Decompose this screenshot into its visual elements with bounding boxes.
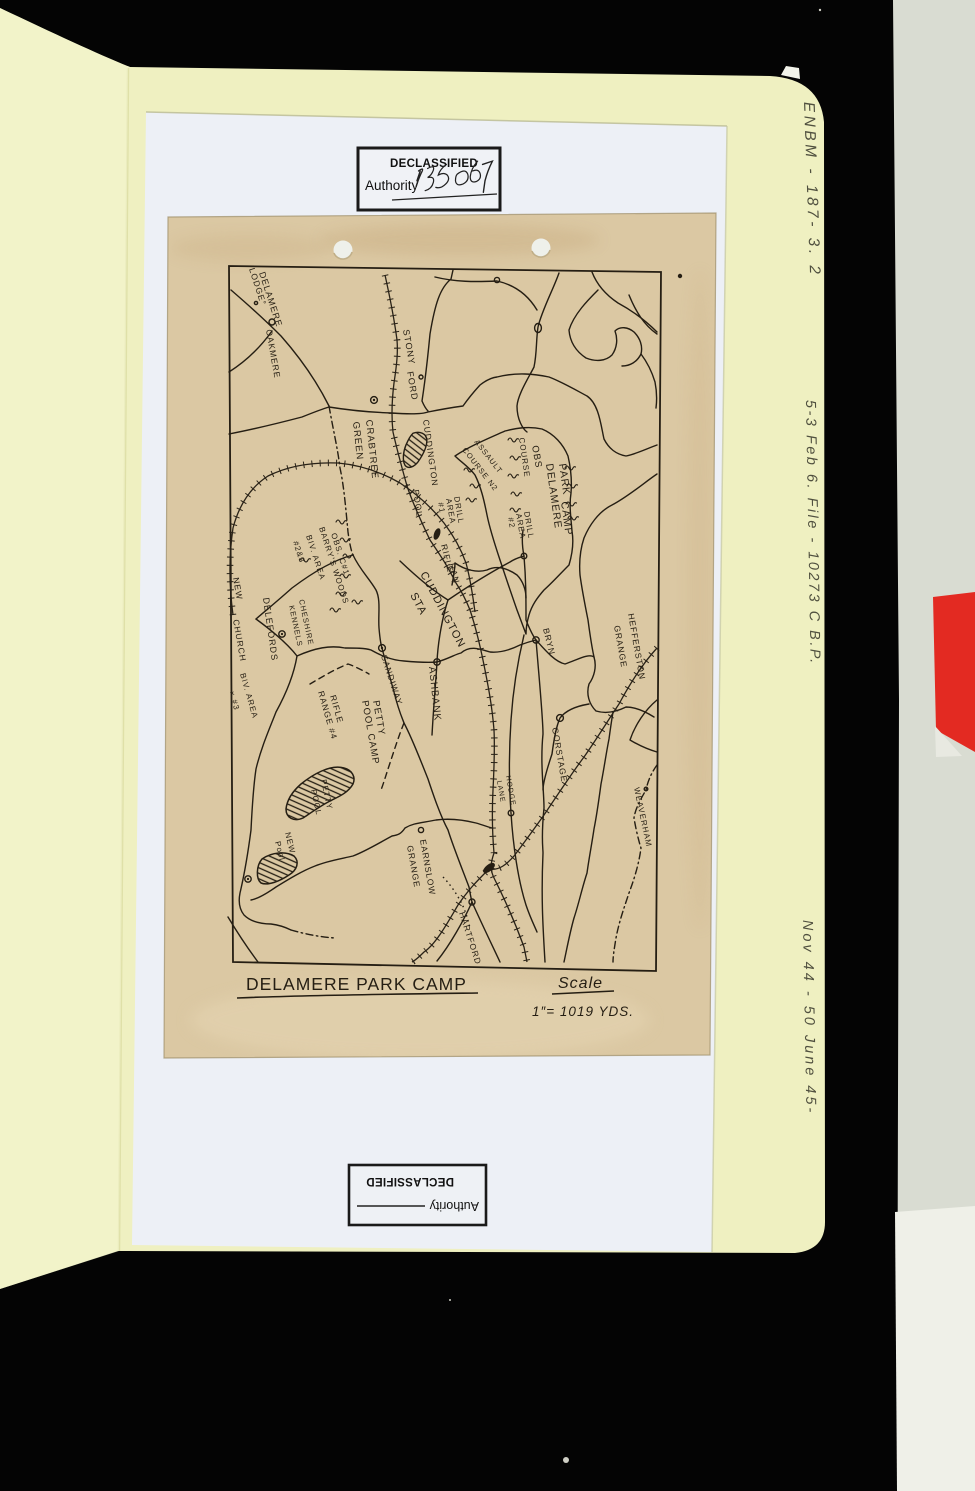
svg-text:DECLASSIFIED: DECLASSIFIED [366, 1175, 454, 1187]
svg-text:#2: #2 [506, 517, 517, 529]
svg-text:Scale: Scale [558, 975, 603, 992]
svg-text:1″= 1019 YDS.: 1″= 1019 YDS. [532, 1004, 634, 1019]
svg-text:Authority: Authority [429, 1199, 479, 1213]
svg-text:Authority: Authority [365, 178, 419, 193]
svg-text:Nov 44 - 50 June 45-: Nov 44 - 50 June 45- [799, 920, 818, 1116]
svg-text:#1: #1 [436, 502, 447, 514]
svg-text:DELAMERE PARK CAMP: DELAMERE PARK CAMP [246, 974, 467, 994]
